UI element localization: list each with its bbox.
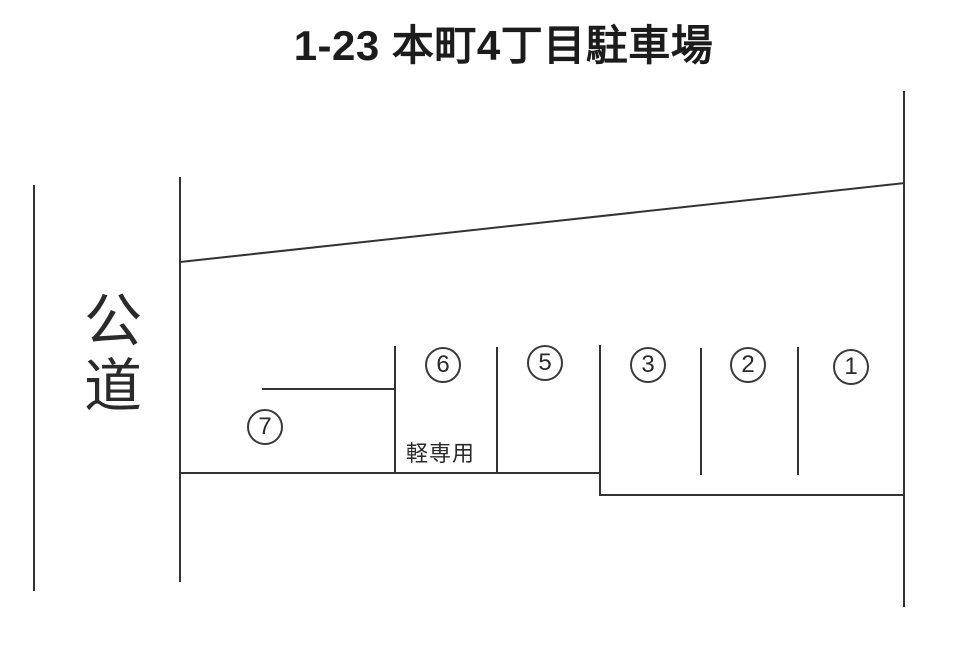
parking-diagram-lines <box>0 0 955 655</box>
stall-number-5: 5 <box>527 345 563 381</box>
stall-number-3: 3 <box>630 347 666 383</box>
stall-number-6: 6 <box>425 347 461 383</box>
parking-lot-map: 1-23 本町4丁目駐車場 公道 1 2 3 5 6 7 軽専用 <box>0 0 955 655</box>
lot-top-slanted-line <box>180 183 905 262</box>
stall-number-7: 7 <box>247 409 283 445</box>
stall-number-1: 1 <box>833 349 869 385</box>
stall-number-2: 2 <box>730 347 766 383</box>
kei-only-label: 軽専用 <box>406 436 475 468</box>
